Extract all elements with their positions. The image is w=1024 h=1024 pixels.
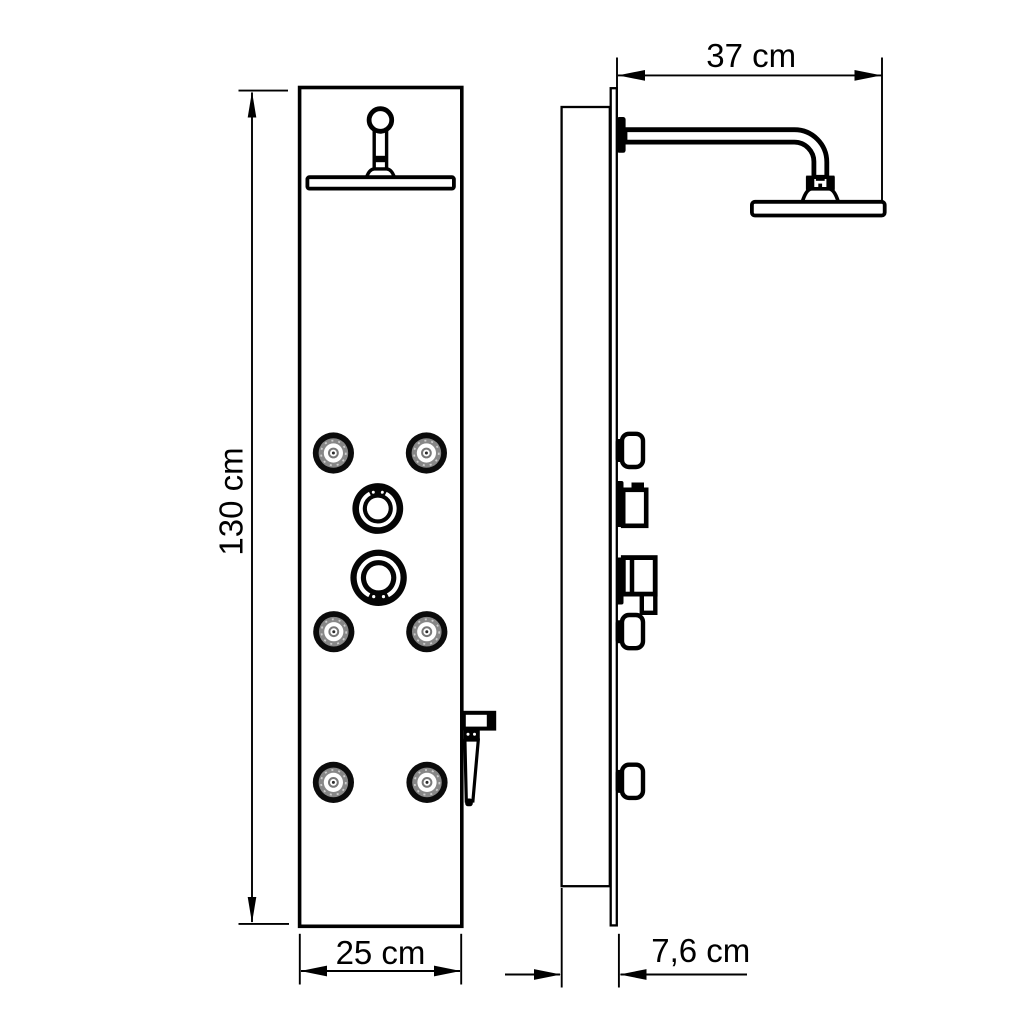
svg-text:130 cm: 130 cm <box>213 447 250 555</box>
svg-text:25 cm: 25 cm <box>336 934 426 971</box>
svg-text:37 cm: 37 cm <box>706 37 796 74</box>
svg-text:7,6 cm: 7,6 cm <box>651 932 750 969</box>
